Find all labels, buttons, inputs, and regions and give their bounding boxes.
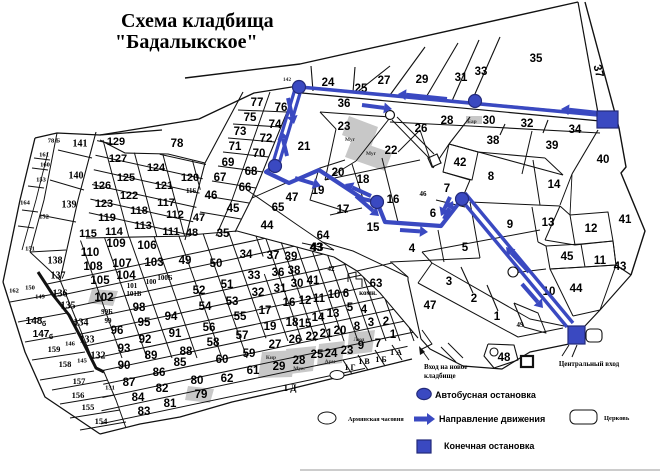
svg-text:Мус.: Мус. [293, 366, 305, 372]
svg-text:"Бадалыкское": "Бадалыкское" [115, 31, 258, 53]
svg-text:79: 79 [195, 389, 208, 401]
svg-text:129: 129 [107, 136, 125, 148]
svg-text:Арм: Арм [325, 359, 336, 365]
svg-text:46: 46 [420, 190, 428, 198]
svg-text:125: 125 [117, 172, 135, 184]
svg-text:30: 30 [483, 115, 496, 127]
svg-text:100Б: 100Б [157, 274, 173, 282]
svg-text:118: 118 [130, 205, 148, 217]
svg-text:78: 78 [171, 138, 184, 150]
svg-text:84: 84 [132, 392, 145, 404]
svg-text:14: 14 [548, 179, 561, 191]
svg-text:Центральный вход: Центральный вход [559, 360, 620, 368]
svg-text:42: 42 [454, 157, 467, 169]
svg-text:69: 69 [222, 157, 235, 169]
svg-text:28: 28 [441, 115, 454, 127]
svg-text:55: 55 [234, 311, 247, 323]
svg-text:33: 33 [248, 270, 261, 282]
svg-text:43: 43 [614, 261, 627, 273]
svg-text:Направление движения: Направление движения [439, 414, 545, 424]
svg-text:17: 17 [337, 204, 350, 216]
svg-text:Армянская часовня: Армянская часовня [348, 416, 404, 423]
svg-text:112: 112 [166, 209, 184, 221]
svg-text:45: 45 [561, 251, 574, 263]
svg-text:111: 111 [162, 226, 179, 238]
svg-text:73: 73 [234, 126, 247, 138]
svg-text:64: 64 [317, 230, 330, 242]
svg-text:22: 22 [385, 145, 398, 157]
svg-text:90: 90 [118, 360, 131, 372]
svg-text:22: 22 [306, 331, 319, 343]
svg-text:157: 157 [73, 376, 87, 386]
svg-text:38: 38 [487, 135, 500, 147]
svg-text:151: 151 [25, 246, 35, 253]
svg-text:89: 89 [145, 350, 158, 362]
svg-text:41: 41 [619, 214, 632, 226]
svg-text:8: 8 [354, 321, 361, 333]
svg-text:7: 7 [375, 338, 381, 350]
svg-text:б: б [42, 320, 47, 328]
svg-text:Конечная остановка: Конечная остановка [444, 441, 535, 451]
svg-text:15: 15 [299, 318, 312, 330]
svg-text:87: 87 [123, 377, 136, 389]
svg-text:82: 82 [156, 383, 169, 395]
svg-text:122: 122 [120, 190, 138, 202]
svg-text:35: 35 [530, 53, 543, 65]
svg-text:51: 51 [221, 279, 234, 291]
svg-text:121: 121 [155, 180, 173, 192]
svg-text:127: 127 [109, 153, 127, 165]
svg-text:78 Б: 78 Б [48, 138, 60, 145]
svg-text:115: 115 [79, 228, 97, 240]
svg-text:6: 6 [430, 208, 436, 220]
svg-text:5: 5 [347, 302, 354, 314]
svg-text:99: 99 [105, 317, 113, 325]
svg-text:145: 145 [77, 358, 88, 365]
svg-text:96: 96 [111, 325, 124, 337]
svg-text:162: 162 [9, 288, 19, 295]
svg-text:101: 101 [127, 282, 138, 290]
svg-text:Муг: Муг [366, 151, 377, 157]
svg-text:21: 21 [320, 328, 333, 340]
svg-text:4: 4 [361, 304, 368, 316]
svg-text:38: 38 [288, 265, 301, 277]
svg-text:131: 131 [105, 385, 115, 392]
svg-text:62: 62 [221, 373, 234, 385]
svg-text:1 Г: 1 Г [344, 363, 355, 372]
svg-text:158: 158 [59, 359, 72, 369]
svg-text:153: 153 [36, 177, 47, 184]
svg-text:1 В: 1 В [358, 357, 370, 366]
svg-text:71: 71 [229, 141, 242, 153]
svg-text:31: 31 [274, 283, 287, 295]
svg-text:59: 59 [243, 348, 256, 360]
svg-text:39: 39 [285, 251, 298, 263]
svg-text:14: 14 [312, 312, 325, 324]
svg-text:17: 17 [259, 305, 272, 317]
svg-text:95: 95 [138, 317, 151, 329]
svg-text:93: 93 [118, 343, 131, 355]
svg-text:1: 1 [494, 311, 501, 323]
svg-text:Церковь: Церковь [604, 415, 630, 422]
svg-text:102: 102 [94, 292, 113, 304]
svg-text:104: 104 [116, 270, 136, 282]
svg-text:60: 60 [216, 354, 229, 366]
svg-text:135: 135 [61, 301, 76, 312]
svg-text:1 Б: 1 Б [375, 355, 386, 364]
svg-text:48: 48 [498, 352, 511, 364]
svg-text:23: 23 [338, 121, 351, 133]
svg-text:кладбище: кладбище [424, 372, 456, 380]
svg-text:Схема кладбища: Схема кладбища [121, 10, 274, 32]
svg-text:94: 94 [165, 311, 178, 323]
svg-text:92: 92 [139, 334, 152, 346]
svg-text:101Б: 101Б [126, 290, 142, 298]
svg-text:142: 142 [283, 77, 292, 83]
svg-text:72: 72 [260, 133, 273, 145]
svg-text:98: 98 [133, 302, 146, 314]
svg-text:152: 152 [39, 214, 49, 221]
svg-text:27: 27 [269, 339, 282, 351]
svg-text:26: 26 [415, 123, 428, 135]
svg-text:9: 9 [507, 219, 513, 231]
svg-text:123: 123 [95, 198, 113, 210]
svg-text:132: 132 [91, 351, 106, 362]
svg-text:23: 23 [341, 345, 354, 357]
svg-text:100: 100 [146, 278, 157, 286]
svg-text:117: 117 [157, 197, 175, 209]
svg-text:133: 133 [80, 335, 95, 346]
svg-text:1: 1 [390, 329, 397, 341]
svg-text:136: 136 [53, 289, 68, 300]
svg-text:б: б [49, 333, 54, 341]
svg-text:18: 18 [286, 317, 299, 329]
svg-text:141: 141 [73, 139, 88, 150]
svg-text:7: 7 [444, 183, 450, 195]
svg-text:66: 66 [239, 182, 252, 194]
svg-text:109: 109 [106, 238, 125, 250]
svg-text:40: 40 [597, 154, 610, 166]
svg-text:120: 120 [181, 172, 199, 184]
svg-text:27: 27 [378, 75, 391, 87]
svg-text:126: 126 [93, 180, 111, 192]
svg-text:113: 113 [134, 220, 152, 232]
svg-text:35: 35 [217, 228, 230, 240]
svg-text:53: 53 [226, 296, 239, 308]
svg-text:24: 24 [322, 77, 335, 89]
svg-text:29: 29 [273, 361, 286, 373]
svg-text:57: 57 [236, 330, 249, 342]
svg-text:36: 36 [272, 267, 285, 279]
svg-text:20: 20 [334, 325, 347, 337]
svg-text:80: 80 [191, 375, 204, 387]
svg-text:116: 116 [186, 187, 197, 195]
svg-text:Бар: Бар [467, 119, 476, 125]
svg-text:49: 49 [179, 255, 192, 267]
svg-text:34: 34 [569, 124, 582, 136]
svg-text:91: 91 [169, 328, 182, 340]
svg-text:138: 138 [48, 256, 63, 267]
svg-text:16: 16 [283, 297, 296, 309]
svg-text:47: 47 [424, 300, 437, 312]
svg-text:70: 70 [253, 148, 266, 160]
svg-text:156: 156 [72, 390, 85, 400]
svg-text:21: 21 [298, 141, 311, 153]
svg-text:комн.: комн. [359, 289, 377, 297]
svg-text:16: 16 [387, 194, 400, 206]
svg-text:147: 147 [33, 329, 50, 340]
svg-text:58: 58 [207, 337, 220, 349]
svg-text:56: 56 [203, 322, 216, 334]
svg-text:150: 150 [25, 285, 35, 292]
svg-text:44: 44 [570, 283, 583, 295]
svg-text:44: 44 [261, 220, 274, 232]
svg-text:45: 45 [227, 203, 240, 215]
svg-text:4: 4 [409, 243, 416, 255]
svg-text:108: 108 [83, 261, 103, 273]
svg-text:34: 34 [240, 249, 253, 261]
svg-text:76: 76 [275, 102, 288, 114]
svg-text:155: 155 [82, 402, 95, 412]
svg-text:31: 31 [455, 72, 468, 84]
svg-text:99Б: 99Б [101, 308, 113, 316]
svg-text:6: 6 [343, 288, 349, 300]
svg-text:39: 39 [546, 140, 559, 152]
svg-text:5: 5 [462, 242, 469, 254]
svg-text:32: 32 [252, 287, 265, 299]
svg-text:43: 43 [310, 242, 323, 254]
svg-text:61: 61 [247, 365, 260, 377]
svg-text:13: 13 [542, 217, 555, 229]
svg-text:67: 67 [214, 172, 227, 184]
svg-text:159: 159 [48, 344, 61, 354]
svg-text:8: 8 [488, 171, 495, 183]
svg-text:49: 49 [517, 321, 525, 329]
svg-text:65: 65 [272, 202, 285, 214]
svg-text:139: 139 [62, 200, 77, 211]
svg-text:36: 36 [338, 98, 351, 110]
svg-text:48: 48 [186, 227, 198, 239]
svg-text:103: 103 [144, 257, 163, 269]
svg-text:106: 106 [137, 240, 156, 252]
svg-text:105: 105 [90, 275, 110, 287]
svg-text:Автобусная остановка: Автобусная остановка [435, 390, 537, 400]
svg-text:86: 86 [153, 367, 166, 379]
svg-text:2: 2 [471, 293, 477, 305]
svg-text:3: 3 [368, 317, 374, 329]
svg-text:124: 124 [147, 162, 166, 174]
svg-text:26: 26 [289, 334, 302, 346]
svg-text:161: 161 [39, 152, 49, 159]
svg-text:12: 12 [299, 295, 312, 307]
svg-text:18: 18 [357, 174, 370, 186]
svg-text:83: 83 [138, 406, 151, 418]
svg-text:85: 85 [174, 357, 187, 369]
svg-text:137: 137 [51, 271, 66, 282]
svg-text:81: 81 [164, 398, 177, 410]
svg-text:52: 52 [193, 285, 206, 297]
svg-text:Люд: Люд [354, 337, 365, 343]
svg-text:1 А: 1 А [390, 348, 402, 357]
svg-text:110: 110 [81, 247, 100, 259]
svg-text:149: 149 [35, 294, 46, 301]
svg-text:140: 140 [69, 171, 84, 182]
svg-text:50: 50 [210, 258, 223, 270]
svg-text:134: 134 [74, 318, 89, 329]
svg-text:160: 160 [40, 162, 50, 169]
svg-text:74: 74 [269, 119, 282, 131]
svg-text:3: 3 [446, 276, 452, 288]
svg-text:47: 47 [286, 192, 299, 204]
svg-text:37: 37 [267, 250, 280, 262]
svg-text:32: 32 [521, 118, 534, 130]
svg-text:77: 77 [251, 97, 264, 109]
svg-text:41: 41 [307, 275, 320, 287]
svg-text:114: 114 [105, 226, 124, 238]
svg-text:15: 15 [367, 222, 380, 234]
svg-text:19: 19 [264, 321, 277, 333]
svg-text:154: 154 [95, 416, 109, 426]
svg-text:2: 2 [383, 316, 389, 328]
svg-text:42: 42 [328, 265, 336, 273]
svg-text:30: 30 [291, 278, 304, 290]
svg-text:148: 148 [26, 316, 43, 327]
svg-text:75: 75 [244, 112, 257, 124]
svg-text:11: 11 [594, 255, 607, 267]
svg-text:1 Д: 1 Д [284, 383, 298, 393]
svg-text:11: 11 [313, 293, 326, 305]
svg-text:146: 146 [65, 341, 76, 348]
svg-text:68: 68 [245, 166, 258, 178]
svg-text:Муг: Муг [345, 137, 356, 143]
svg-text:54: 54 [199, 301, 212, 313]
svg-text:119: 119 [98, 212, 116, 224]
svg-text:12: 12 [585, 223, 598, 235]
svg-text:29: 29 [416, 74, 429, 86]
svg-text:46: 46 [205, 190, 218, 202]
svg-text:33: 33 [475, 66, 488, 78]
svg-text:47: 47 [193, 212, 205, 224]
svg-text:25: 25 [311, 349, 324, 361]
svg-text:164: 164 [20, 200, 31, 207]
svg-text:Вход на новое: Вход на новое [424, 363, 467, 371]
svg-text:Кир: Кир [266, 355, 276, 361]
svg-text:13: 13 [327, 308, 340, 320]
svg-text:10: 10 [328, 289, 341, 301]
svg-text:107: 107 [112, 258, 131, 270]
